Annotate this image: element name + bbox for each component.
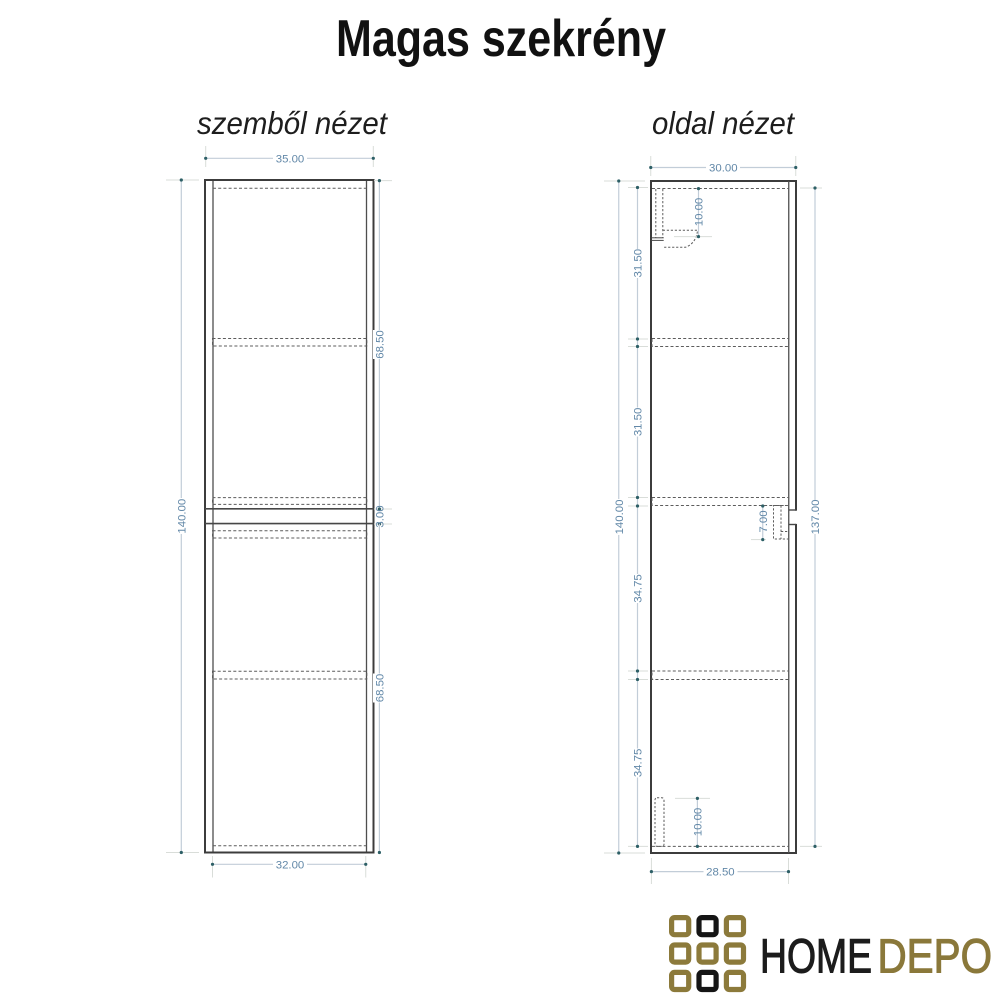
svg-text:31.50: 31.50 xyxy=(633,408,645,437)
svg-text:szemből nézet: szemből nézet xyxy=(197,105,388,141)
svg-text:10.00: 10.00 xyxy=(692,808,704,837)
svg-text:31.50: 31.50 xyxy=(633,249,645,278)
svg-text:30.00: 30.00 xyxy=(709,163,738,175)
svg-text:DEPO: DEPO xyxy=(878,931,993,984)
svg-text:34.75: 34.75 xyxy=(633,574,645,603)
svg-text:137.00: 137.00 xyxy=(810,500,822,535)
svg-text:28.50: 28.50 xyxy=(706,867,735,879)
svg-text:oldal nézet: oldal nézet xyxy=(652,105,795,141)
svg-text:7.00: 7.00 xyxy=(758,510,770,532)
svg-text:68.50: 68.50 xyxy=(374,674,386,703)
svg-text:140.00: 140.00 xyxy=(176,499,188,534)
svg-text:Magas szekrény: Magas szekrény xyxy=(336,10,666,68)
svg-text:HOME: HOME xyxy=(760,931,872,984)
svg-text:34.75: 34.75 xyxy=(633,749,645,778)
svg-text:35.00: 35.00 xyxy=(276,153,305,165)
svg-text:10.00: 10.00 xyxy=(694,198,706,227)
svg-text:140.00: 140.00 xyxy=(614,500,626,535)
svg-text:68.50: 68.50 xyxy=(374,330,386,359)
svg-text:32.00: 32.00 xyxy=(276,859,305,871)
svg-text:3.00: 3.00 xyxy=(374,505,386,527)
